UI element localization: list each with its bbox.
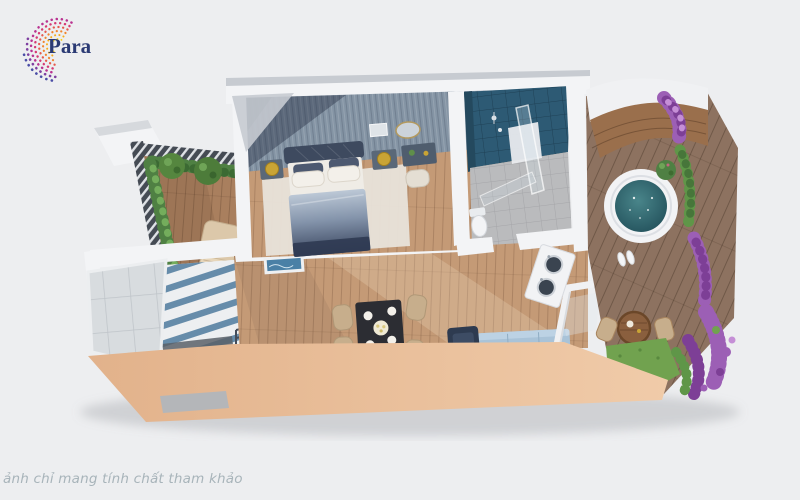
disclaimer-text: ảnh chỉ mang tính chất tham khảo xyxy=(3,471,243,487)
bed xyxy=(283,141,372,258)
logo-text: Para xyxy=(48,34,92,58)
table-lamp-left xyxy=(266,163,279,176)
vanity-desk xyxy=(401,142,437,166)
wall-artwork xyxy=(263,255,304,275)
bathroom xyxy=(456,85,592,256)
jacuzzi-water xyxy=(615,180,667,232)
brand-logo: Para xyxy=(0,0,150,96)
outdoor-table xyxy=(618,312,650,344)
jacuzzi xyxy=(604,169,678,243)
floorplan-render-page: Para ảnh chỉ mang tính chất tham khảo xyxy=(0,0,800,500)
vanity-chair xyxy=(405,169,430,188)
wall-frame xyxy=(370,123,388,136)
terrace-plant xyxy=(656,160,676,180)
table-lamp-right xyxy=(378,153,391,166)
